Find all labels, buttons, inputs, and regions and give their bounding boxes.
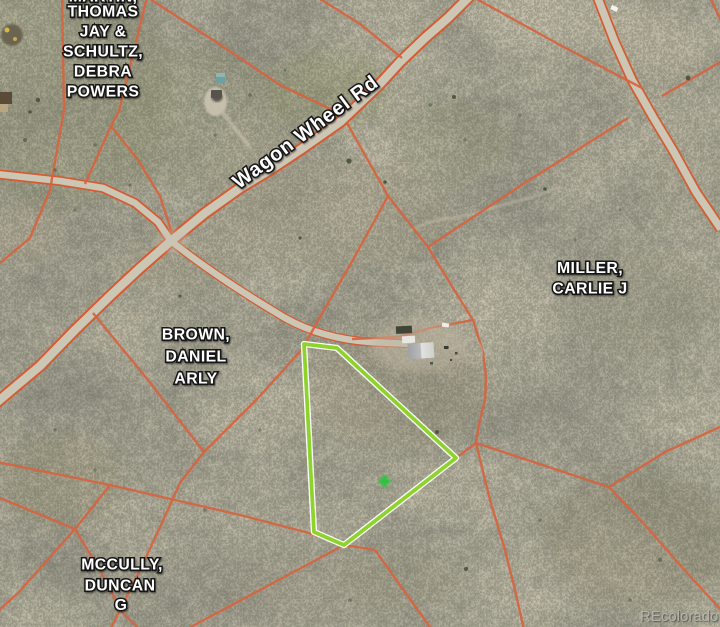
svg-text:MILLER,: MILLER, [557,260,623,277]
svg-text:DUNCAN: DUNCAN [85,578,156,595]
svg-text:MCCULLY,: MCCULLY, [81,557,163,574]
svg-text:ARLY: ARLY [174,371,217,388]
svg-text:JAY &: JAY & [80,24,127,41]
svg-text:DEBRA: DEBRA [74,64,132,81]
svg-text:POWERS: POWERS [67,84,140,101]
svg-text:SCHULTZ,: SCHULTZ, [63,44,143,61]
svg-text:CARLIE J: CARLIE J [552,281,627,298]
svg-text:DANIEL: DANIEL [165,349,226,366]
svg-text:G: G [115,597,128,614]
svg-text:REcolorado: REcolorado [640,608,718,625]
svg-text:THOMAS: THOMAS [68,4,139,21]
svg-text:BROWN,: BROWN, [162,327,230,344]
